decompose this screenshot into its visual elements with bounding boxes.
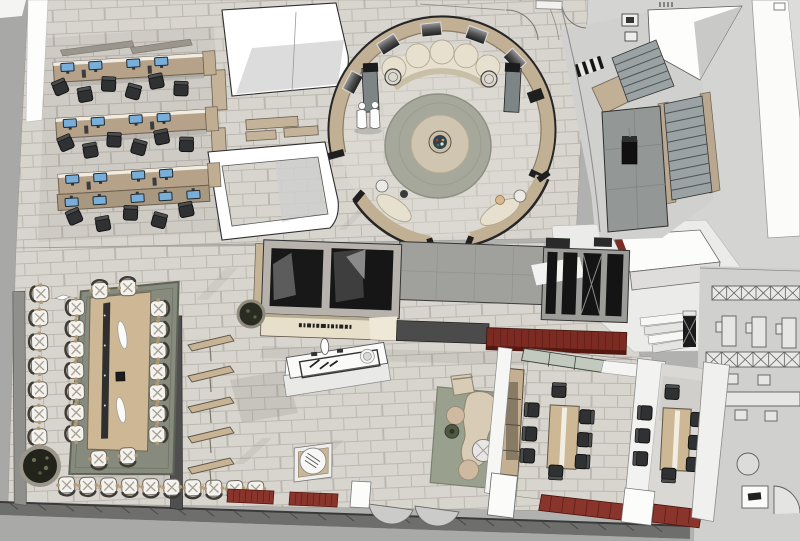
stair-landing xyxy=(602,106,668,232)
dark-counter-panel xyxy=(396,321,489,344)
pedestal xyxy=(622,140,637,164)
conference-chair xyxy=(65,423,84,444)
meeting-chair xyxy=(520,448,535,463)
office-chair xyxy=(107,132,122,147)
meeting-chair xyxy=(637,405,652,420)
meeting-chair xyxy=(522,426,537,441)
office-chair xyxy=(101,76,116,91)
office-chair xyxy=(77,86,93,103)
exterior-corner-wall xyxy=(0,0,26,18)
desk-accessory xyxy=(148,66,152,74)
conference-chair xyxy=(66,297,85,318)
office-chair xyxy=(95,215,111,232)
wall-chair xyxy=(182,479,203,498)
wall-chair xyxy=(28,403,47,424)
small-planter xyxy=(238,301,264,327)
white-pod-2 xyxy=(208,142,338,240)
white-pod-1 xyxy=(222,3,348,96)
office-chair xyxy=(123,205,138,220)
sofa-lobe xyxy=(454,44,478,68)
wall-pillar xyxy=(487,473,517,518)
meeting-chair xyxy=(552,382,567,397)
conference-chair xyxy=(88,450,109,469)
pouf xyxy=(458,460,479,481)
desk-accessory xyxy=(84,126,88,134)
wall-chair xyxy=(56,477,77,496)
office-chair xyxy=(178,201,195,218)
desk-cabinet xyxy=(205,107,218,132)
conference-chair xyxy=(117,447,138,466)
conference-chair xyxy=(89,280,110,299)
wall-chair xyxy=(203,480,224,499)
conference-chair xyxy=(65,318,84,339)
desk-accessory xyxy=(152,177,156,185)
wall-chair xyxy=(28,379,47,400)
meeting-chair xyxy=(577,432,592,447)
meeting-chair xyxy=(548,465,563,480)
wall-chair xyxy=(29,307,48,328)
sofa-lobe xyxy=(430,40,454,64)
meeting-chair xyxy=(665,384,680,399)
conference-chair xyxy=(150,340,169,361)
large-planter xyxy=(21,447,59,485)
office-chair xyxy=(148,73,165,90)
conference-chair xyxy=(117,277,138,296)
meeting-chair xyxy=(661,468,676,483)
meeting-chair xyxy=(524,403,539,418)
meeting-chair xyxy=(575,454,590,469)
wall-pillar xyxy=(621,488,655,526)
wall-chair xyxy=(140,478,161,497)
conference-chair xyxy=(149,424,168,445)
meeting-chair xyxy=(633,451,648,466)
seated-person xyxy=(400,190,408,198)
conference-chair xyxy=(66,381,85,402)
framed-art xyxy=(421,22,442,37)
pouf xyxy=(446,406,465,425)
sofa-lobe xyxy=(406,44,430,68)
office-chair xyxy=(174,81,188,96)
seated-person xyxy=(496,196,505,205)
desk-cabinet xyxy=(203,51,216,76)
desk-cabinet xyxy=(208,163,221,188)
desk-accessory xyxy=(82,70,86,78)
conference-chair xyxy=(149,403,168,424)
wire-round-table xyxy=(737,453,759,475)
meeting-chair xyxy=(579,409,594,424)
floorplan-render xyxy=(0,0,800,541)
side-table xyxy=(481,71,497,87)
office-chair xyxy=(82,142,98,159)
wall-chair xyxy=(77,477,98,496)
meeting-chair xyxy=(635,428,650,443)
desk-accessory xyxy=(150,122,154,130)
white-pedestal xyxy=(350,481,371,508)
conference-chair xyxy=(150,298,169,319)
wall-chair xyxy=(29,355,48,376)
conference-chair xyxy=(149,361,168,382)
wire-desks xyxy=(716,316,796,348)
wall-switch-icon xyxy=(625,32,637,41)
conference-chair xyxy=(149,382,168,403)
side-table-square xyxy=(292,443,334,482)
meeting-room-2 xyxy=(621,358,730,529)
table-hub xyxy=(116,372,125,381)
conference-chair xyxy=(65,402,84,423)
office-chair xyxy=(153,128,170,145)
wall-chair xyxy=(161,479,182,498)
office-chair xyxy=(179,137,193,152)
side-table xyxy=(385,69,401,85)
conference-chair xyxy=(65,339,84,360)
wall-chair xyxy=(28,426,47,447)
wall-chair xyxy=(30,283,49,304)
wall-chair xyxy=(98,478,119,497)
desk-accessory xyxy=(86,181,90,189)
conference-chair xyxy=(150,319,169,340)
wall-chair xyxy=(119,478,140,497)
wall-chair xyxy=(29,331,48,352)
conference-chair xyxy=(65,360,84,381)
